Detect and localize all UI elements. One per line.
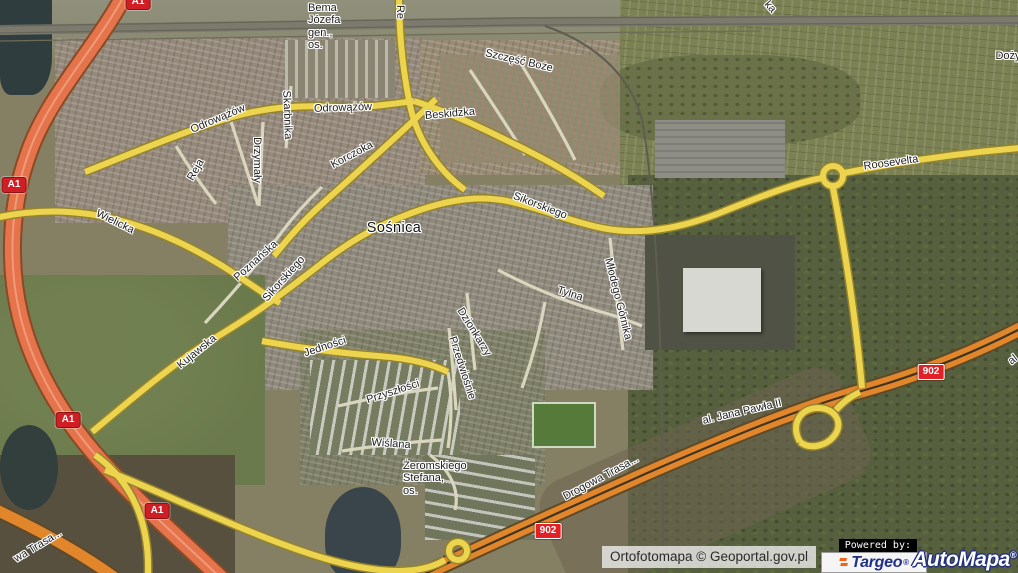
road-shields-layer: A1A1A1A1902902 — [0, 0, 1018, 573]
automapa-wordmark: AutoMapa — [912, 548, 1010, 571]
attribution-bar: Ortofotomapa © Geoportal.gov.pl — [602, 546, 816, 568]
road-shield-a1: A1 — [126, 0, 151, 10]
targeo-wordmark: Targeo — [851, 554, 902, 572]
targeo-spark-icon — [838, 557, 850, 568]
powered-by-label: Powered by: — [839, 539, 917, 552]
road-shield-a1: A1 — [145, 503, 170, 519]
road-shield-902: 902 — [535, 523, 562, 539]
automapa-registered-mark: ® — [1010, 550, 1016, 560]
road-shield-902: 902 — [918, 364, 945, 380]
road-shield-a1: A1 — [56, 412, 81, 428]
automapa-logo[interactable]: AutoMapa® — [912, 548, 1016, 572]
targeo-registered-mark: ® — [903, 558, 909, 567]
road-shield-a1: A1 — [2, 177, 27, 193]
map-canvas[interactable]: ReBemaJózefagen.,os.DożykaSzczęść BożeOd… — [0, 0, 1018, 573]
attribution-text: Ortofotomapa © Geoportal.gov.pl — [610, 549, 808, 564]
